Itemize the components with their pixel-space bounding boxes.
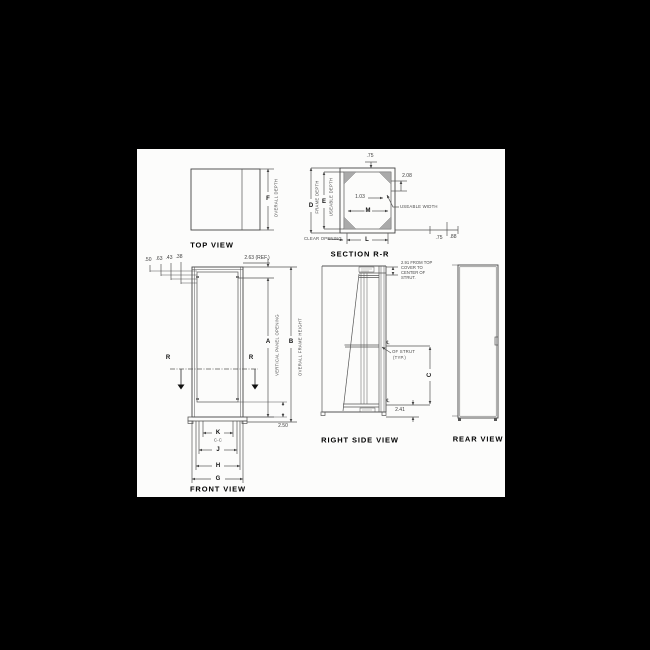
- dim-label-k-cc: C-C: [214, 438, 222, 443]
- dim-letter-h: H: [215, 463, 221, 469]
- view-title-right-side: RIGHT SIDE VIEW: [321, 436, 399, 445]
- dim-value-75-top: .75: [367, 153, 374, 159]
- top-view-linework: [191, 169, 274, 230]
- centerline-symbol-bottom: ℄: [386, 398, 389, 404]
- dim-label-useable-depth: USEABLE DEPTH: [329, 178, 334, 217]
- scanned-drawing-page: F OVERALL DEPTH TOP VIEW .75 D FRAME DEP…: [0, 0, 650, 650]
- section-cut-letter-r-right: R: [248, 355, 254, 361]
- right-side-view-linework: [321, 266, 430, 422]
- dim-value-75-bottom: .75: [436, 235, 443, 241]
- dim-label-frame-depth: FRAME DEPTH: [315, 180, 320, 213]
- centerline-symbol-mid: ℄: [386, 340, 389, 346]
- label-typ: (TYP.): [393, 355, 406, 360]
- label-of-strut: OF STRUT: [392, 349, 415, 354]
- dim-value-250: 2.50: [278, 423, 288, 429]
- dim-letter-k: K: [215, 430, 221, 436]
- dim-letter-j: J: [215, 447, 220, 453]
- label-clear-opening: CLEAR OPENING: [304, 236, 342, 241]
- rear-view-linework: [452, 265, 498, 421]
- dim-label-vertical-panel-opening: VERTICAL PANEL OPENING: [275, 314, 280, 376]
- dim-letter-a: A: [265, 339, 271, 345]
- dim-letter-m: M: [365, 208, 372, 214]
- view-title-rear: REAR VIEW: [453, 435, 504, 444]
- dim-letter-c: C: [427, 372, 433, 378]
- view-title-section-rr: SECTION R-R: [331, 250, 390, 259]
- dim-letter-g: G: [215, 476, 222, 482]
- dim-value-small-1: .50: [145, 257, 152, 263]
- view-title-front: FRONT VIEW: [190, 485, 246, 494]
- dim-letter-b: B: [288, 339, 294, 345]
- label-useable-width: USEABLE WIDTH: [400, 204, 438, 209]
- dim-value-263-ref: 2.63 (REF.): [244, 255, 269, 261]
- dim-value-small-4: .38: [176, 254, 183, 260]
- dim-value-88: .88: [450, 234, 457, 240]
- dim-value-103: 1.03: [355, 194, 365, 200]
- dim-letter-e: E: [321, 199, 327, 205]
- dim-value-small-3: .43: [166, 255, 173, 261]
- note-strut-line4: STRUT.: [401, 275, 416, 280]
- section-cut-letter-r-left: R: [165, 355, 171, 361]
- dim-value-small-2: .63: [156, 256, 163, 262]
- view-title-top: TOP VIEW: [190, 241, 234, 250]
- dim-value-241: 2.41: [395, 407, 405, 413]
- dim-letter-f: F: [265, 196, 271, 202]
- dim-label-overall-depth: OVERALL DEPTH: [274, 179, 279, 217]
- drawing-paper: F OVERALL DEPTH TOP VIEW .75 D FRAME DEP…: [137, 149, 505, 497]
- dim-label-overall-frame-height: OVERALL FRAME HEIGHT: [298, 318, 303, 376]
- dim-value-208: 2.08: [402, 173, 412, 179]
- dim-letter-d: D: [308, 203, 314, 209]
- dim-letter-l: L: [364, 237, 370, 243]
